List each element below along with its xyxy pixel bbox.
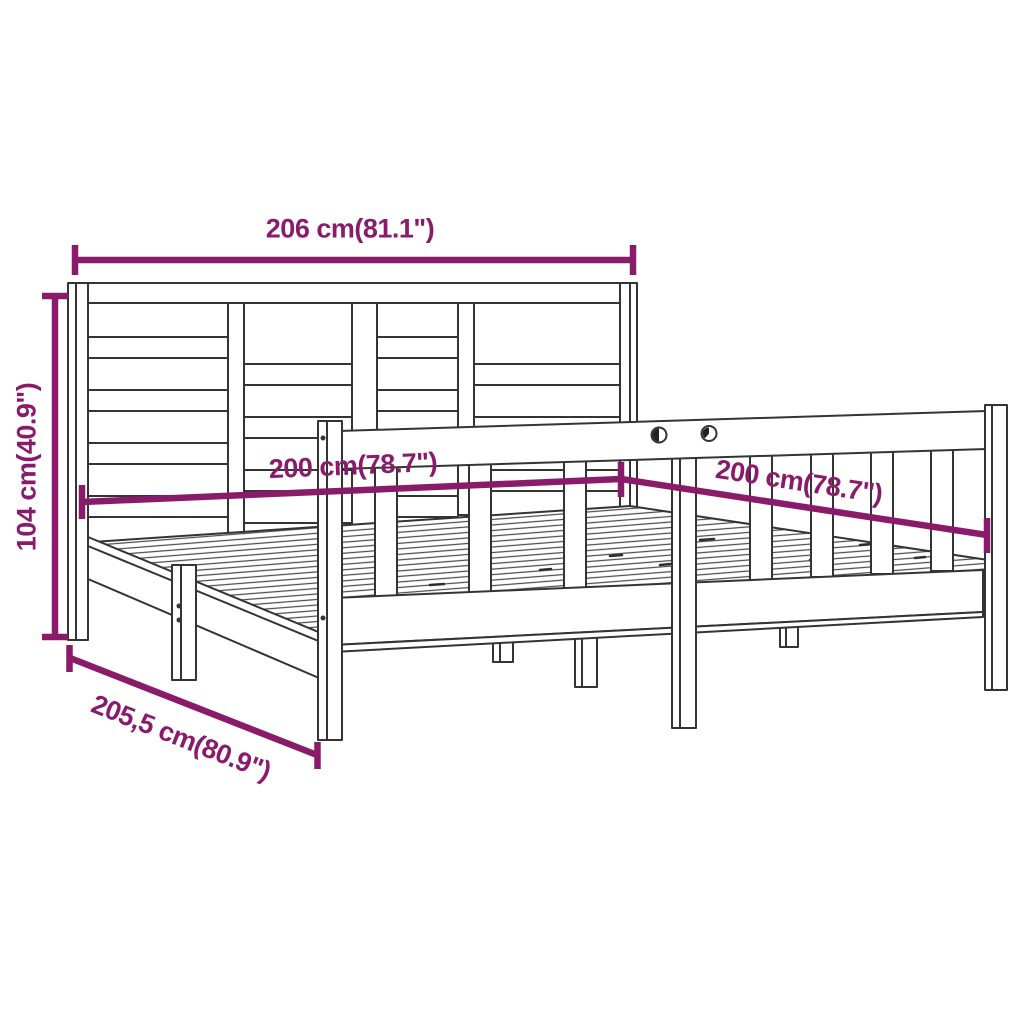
dimension-label-width: 206 cm(81.1")	[266, 214, 434, 245]
dimension-line-height	[42, 296, 68, 637]
bed-frame-line-drawing	[0, 0, 1024, 1024]
front-center-leg	[672, 452, 696, 728]
dimension-label-height: 104 cm(40.9")	[12, 383, 43, 551]
bed-frame-dimension-diagram: 206 cm(81.1") 104 cm(40.9") 200 cm(78.7"…	[0, 0, 1024, 1024]
dimension-line-width	[75, 245, 633, 275]
cam-lock-icon	[652, 428, 667, 443]
cam-lock-icon	[702, 426, 717, 441]
